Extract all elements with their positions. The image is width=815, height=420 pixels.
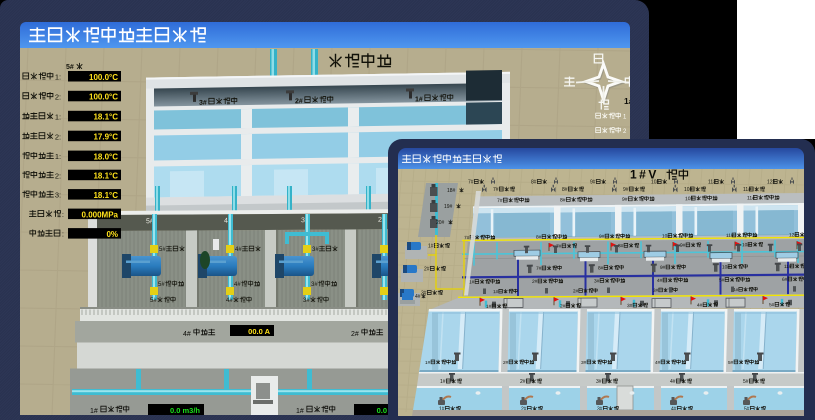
svg-text:1#: 1# [624,96,630,106]
svg-text:2#: 2# [532,279,538,285]
svg-text:7#: 7# [464,235,470,241]
svg-text:1#: 1# [90,408,98,415]
svg-text:0.0 m3/h: 0.0 m3/h [170,406,200,415]
svg-text:5#: 5# [159,247,166,253]
svg-text:1#: 1# [415,96,423,103]
svg-text:2:: 2: [55,132,61,141]
svg-text:3#: 3# [303,298,310,304]
svg-text:3#: 3# [581,360,587,366]
svg-text:4#: 4# [697,303,703,309]
svg-text:3#: 3# [653,288,659,293]
svg-text:8#: 8# [536,235,542,241]
svg-text:6#: 6# [782,277,788,283]
svg-text:10#: 10# [685,196,694,202]
svg-text:18.1°C: 18.1°C [93,172,118,181]
svg-text:5#: 5# [743,379,749,385]
svg-text:1:: 1: [55,112,61,121]
svg-text:3#: 3# [627,303,633,309]
svg-text:2#: 2# [295,98,303,105]
svg-text:7#: 7# [493,187,499,193]
svg-text:20#: 20# [436,220,445,226]
svg-text:3#: 3# [312,247,319,253]
svg-text:8#: 8# [531,180,537,186]
svg-text:3#: 3# [594,278,600,284]
svg-text:3#: 3# [199,100,207,107]
svg-text:2#: 2# [573,288,579,293]
svg-text:7#: 7# [536,266,542,272]
svg-text:0%: 0% [106,230,118,239]
svg-text::: : [62,210,64,219]
svg-text:2#: 2# [560,303,566,309]
svg-text:2:: 2: [55,171,61,180]
svg-text:1#: 1# [296,408,304,415]
svg-text:4#: 4# [183,331,191,338]
svg-text:5#: 5# [769,302,775,308]
svg-text:9#: 9# [590,180,596,186]
svg-text:1#: 1# [425,360,431,366]
svg-text:100.0°C: 100.0°C [89,73,118,82]
svg-text:1#: 1# [428,244,434,250]
svg-text:12#: 12# [789,232,797,238]
svg-text:00.0 A: 00.0 A [248,327,270,336]
svg-text:3#: 3# [596,379,602,385]
svg-text:10#: 10# [742,242,750,248]
svg-text:9#: 9# [623,187,629,193]
svg-text:7#: 7# [497,198,503,204]
svg-text:2#: 2# [351,331,359,338]
svg-text:11#: 11# [708,180,716,186]
svg-text:2#: 2# [424,267,430,273]
svg-text:7#: 7# [468,180,474,186]
svg-text:0.000MPa: 0.000MPa [82,210,119,219]
svg-text:4#: 4# [235,247,242,253]
svg-text:10#: 10# [662,233,670,239]
svg-text:10#: 10# [684,187,693,193]
svg-text::: : [62,230,64,239]
svg-text:100.0°C: 100.0°C [89,93,118,102]
svg-text:10#: 10# [651,180,660,186]
svg-text:8#: 8# [562,187,568,193]
svg-text:3:: 3: [55,191,61,200]
svg-text:1#: 1# [440,379,446,385]
svg-text:12#: 12# [767,180,776,186]
svg-text:4#: 4# [670,379,676,385]
svg-text:18.1°C: 18.1°C [93,113,118,122]
svg-text:1:: 1: [55,152,61,161]
svg-text:10#: 10# [722,264,730,270]
svg-text:4#: 4# [415,294,421,300]
svg-text:19#: 19# [444,204,453,210]
svg-text:1#: 1# [493,289,499,294]
svg-text:2:: 2: [55,92,61,101]
svg-text:18#: 18# [447,188,456,194]
svg-text:11#: 11# [747,195,755,201]
svg-text:2#: 2# [503,360,509,366]
svg-text:11#: 11# [726,233,734,239]
svg-text:4#: 4# [226,298,233,304]
svg-text:4#: 4# [234,282,241,288]
svg-text:9#: 9# [622,197,628,203]
svg-text:2#: 2# [520,379,526,385]
svg-text:11#: 11# [743,187,751,193]
svg-text:5#: 5# [66,64,74,71]
svg-text:9#: 9# [680,243,686,249]
svg-text:11#: 11# [784,264,792,270]
svg-text:18.1°C: 18.1°C [93,191,118,200]
svg-text:5#: 5# [158,282,165,288]
svg-text:9#: 9# [599,234,605,240]
svg-text:5#: 5# [719,277,725,283]
svg-text:3#: 3# [311,282,318,288]
svg-text:1:: 1: [55,73,61,82]
svg-text:5#: 5# [150,298,157,304]
svg-text:4#: 4# [657,278,663,284]
svg-text:8#: 8# [598,265,604,271]
svg-text:17.9°C: 17.9°C [93,133,118,142]
svg-text:18.0°C: 18.0°C [93,152,118,161]
svg-text:4#: 4# [655,360,661,366]
svg-text:8#: 8# [560,197,566,203]
svg-text:5#: 5# [728,360,734,366]
svg-text:9#: 9# [660,265,666,271]
